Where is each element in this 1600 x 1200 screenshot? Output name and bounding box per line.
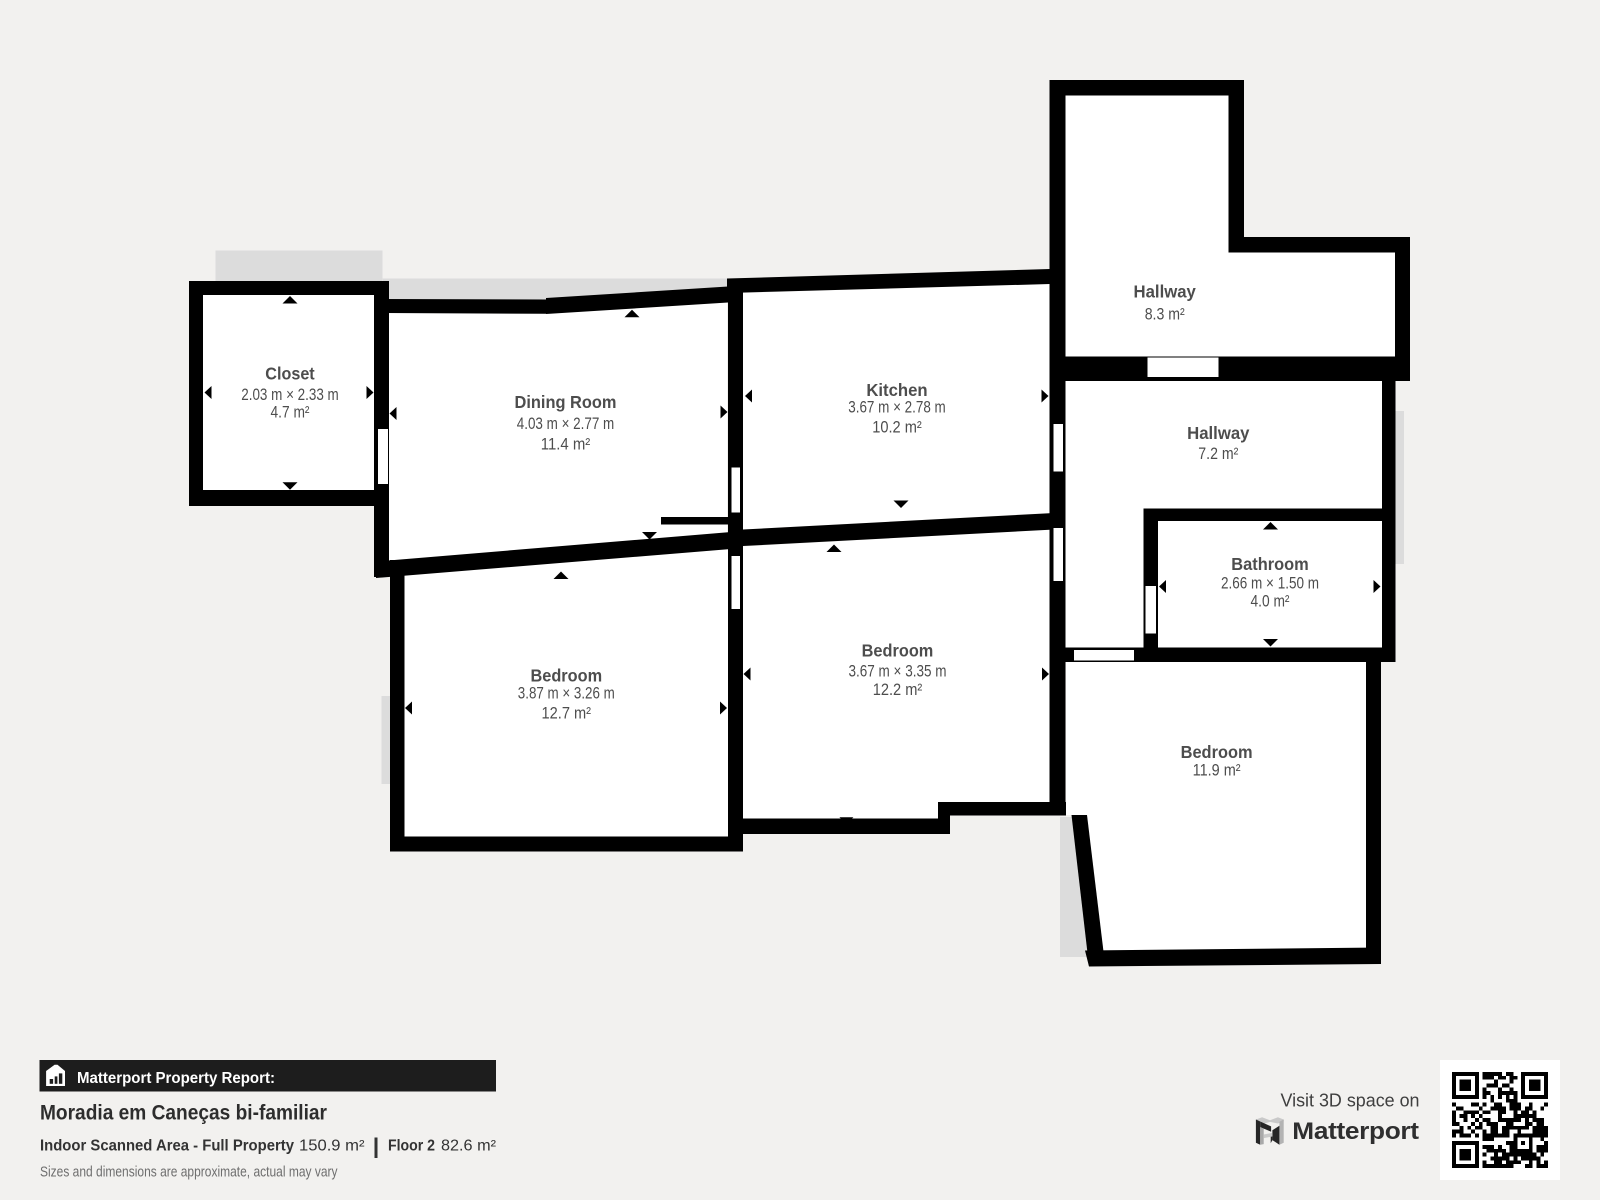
- svg-text:Hallway: Hallway: [1134, 282, 1196, 302]
- svg-text:3.67 m × 3.35 m: 3.67 m × 3.35 m: [849, 663, 947, 681]
- svg-text:2.03 m × 2.33 m: 2.03 m × 2.33 m: [241, 386, 339, 404]
- svg-text:Dining Room: Dining Room: [515, 392, 617, 412]
- svg-text:8.3 m²: 8.3 m²: [1145, 305, 1186, 323]
- svg-text:Bedroom: Bedroom: [1181, 742, 1253, 762]
- svg-text:10.2 m²: 10.2 m²: [872, 419, 922, 437]
- svg-text:Indoor Scanned Area - Full Pro: Indoor Scanned Area - Full Property: [40, 1138, 294, 1155]
- svg-text:Visit 3D space on: Visit 3D space on: [1281, 1090, 1420, 1111]
- svg-text:3.87 m × 3.26 m: 3.87 m × 3.26 m: [518, 685, 615, 703]
- svg-text:82.6 m²: 82.6 m²: [441, 1138, 496, 1155]
- svg-text:Matterport Property Report:: Matterport Property Report:: [77, 1070, 275, 1087]
- svg-text:12.2 m²: 12.2 m²: [873, 681, 923, 699]
- svg-text:12.7 m²: 12.7 m²: [542, 704, 592, 722]
- svg-text:4.03 m × 2.77 m: 4.03 m × 2.77 m: [517, 415, 615, 433]
- svg-text:3.67 m × 2.78 m: 3.67 m × 2.78 m: [848, 399, 946, 417]
- svg-text:4.7 m²: 4.7 m²: [271, 404, 311, 422]
- svg-text:150.9 m²: 150.9 m²: [299, 1138, 365, 1155]
- svg-text:Bedroom: Bedroom: [862, 641, 934, 661]
- svg-text:11.4 m²: 11.4 m²: [541, 435, 591, 453]
- svg-text:Sizes and dimensions are appro: Sizes and dimensions are approximate, ac…: [40, 1164, 338, 1180]
- svg-text:Closet: Closet: [265, 363, 315, 383]
- svg-text:Kitchen: Kitchen: [866, 380, 927, 400]
- svg-text:4.0 m²: 4.0 m²: [1251, 592, 1291, 610]
- svg-text:Hallway: Hallway: [1187, 423, 1249, 443]
- svg-text:Floor 2: Floor 2: [388, 1138, 435, 1155]
- svg-text:7.2 m²: 7.2 m²: [1198, 445, 1239, 463]
- svg-text:Moradia em Caneças bi-familiar: Moradia em Caneças bi-familiar: [40, 1101, 327, 1124]
- svg-text:11.9 m²: 11.9 m²: [1193, 762, 1242, 780]
- svg-text:2.66 m × 1.50 m: 2.66 m × 1.50 m: [1221, 574, 1319, 592]
- svg-text:Bathroom: Bathroom: [1231, 554, 1309, 574]
- svg-text:Bedroom: Bedroom: [530, 666, 602, 686]
- svg-text:Matterport: Matterport: [1292, 1118, 1419, 1145]
